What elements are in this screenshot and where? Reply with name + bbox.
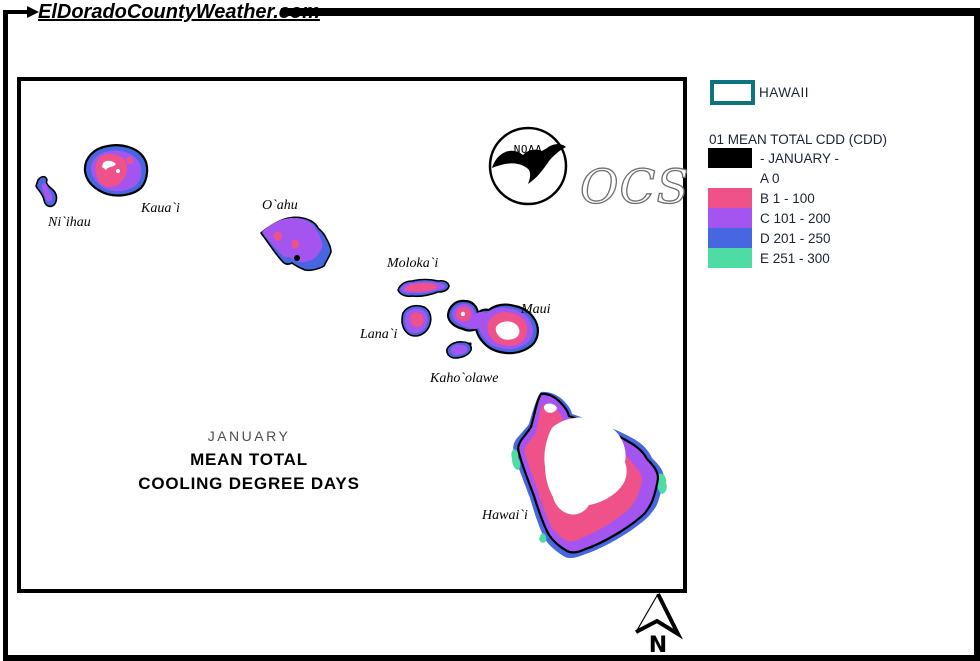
hawaii-extent-label: HAWAII bbox=[759, 85, 809, 100]
legend-swatch-january bbox=[708, 148, 752, 168]
legend-swatch-a bbox=[708, 168, 752, 188]
legend-row-b: B 1 - 100 bbox=[708, 188, 839, 208]
hawaii-extent-box bbox=[710, 80, 755, 105]
island-hawaii-zone-e-southwest bbox=[539, 534, 546, 543]
legend-row-c: C 101 - 200 bbox=[708, 208, 839, 228]
legend-row-d: D 201 - 250 bbox=[708, 228, 839, 248]
label-kahoolawe: Kaho`olawe bbox=[429, 371, 498, 386]
legend-row-e: E 251 - 300 bbox=[708, 248, 839, 268]
island-kahoolawe[interactable] bbox=[447, 342, 471, 358]
legend-label-e: E 251 - 300 bbox=[760, 251, 830, 266]
map-title-line1: JANUARY bbox=[208, 428, 291, 444]
island-hawaii[interactable] bbox=[511, 392, 666, 558]
legend-label-c: C 101 - 200 bbox=[760, 211, 831, 226]
legend-label-a: A 0 bbox=[760, 171, 780, 186]
north-arrow-icon-bold bbox=[636, 594, 678, 634]
north-label: N bbox=[649, 633, 667, 658]
island-kauai[interactable] bbox=[85, 145, 147, 195]
oahu-urban-mark bbox=[294, 255, 300, 261]
ocs-watermark: OCS bbox=[580, 160, 690, 215]
legend-swatch-b bbox=[708, 188, 752, 208]
label-molokai: Moloka`i bbox=[386, 256, 438, 271]
map-title-line2: MEAN TOTAL bbox=[190, 450, 308, 469]
legend-swatch-c bbox=[708, 208, 752, 228]
island-molokai[interactable] bbox=[398, 280, 449, 297]
legend-swatch-d bbox=[708, 228, 752, 248]
page: ElDoradoCountyWeather.com bbox=[0, 0, 980, 661]
label-oahu: O`ahu bbox=[262, 198, 298, 213]
noaa-logo: NOAA bbox=[490, 128, 566, 204]
legend-title: 01 MEAN TOTAL CDD (CDD) bbox=[709, 132, 887, 147]
label-niihau: Ni`ihau bbox=[47, 215, 91, 230]
legend-label-january: - JANUARY - bbox=[760, 151, 839, 166]
label-hawaii: Hawai`i bbox=[481, 508, 528, 523]
island-lanai[interactable] bbox=[402, 306, 431, 336]
label-lanai: Lana`i bbox=[359, 327, 397, 342]
hawaii-map-svg: Ni`ihau Kaua`i O`ahu Moloka`i Lana`i Mau… bbox=[0, 0, 980, 661]
island-maui-zone-a2 bbox=[461, 312, 465, 316]
legend-row-a: A 0 bbox=[708, 168, 839, 188]
legend-label-b: B 1 - 100 bbox=[760, 191, 815, 206]
map-title: JANUARY MEAN TOTAL COOLING DEGREE DAYS bbox=[138, 428, 359, 493]
island-oahu[interactable] bbox=[261, 217, 331, 270]
label-maui: Maui bbox=[520, 302, 551, 317]
label-kauai: Kaua`i bbox=[140, 201, 180, 216]
header-arrow-icon bbox=[27, 6, 39, 18]
legend-rows: - JANUARY - A 0 B 1 - 100 C 101 - 200 D … bbox=[708, 148, 839, 268]
legend-row-january: - JANUARY - bbox=[708, 148, 839, 168]
north-compass: N bbox=[636, 594, 678, 658]
island-kauai-zone-a2 bbox=[116, 169, 120, 173]
island-niihau[interactable] bbox=[36, 177, 57, 207]
map-title-line3: COOLING DEGREE DAYS bbox=[138, 474, 359, 493]
legend-label-d: D 201 - 250 bbox=[760, 231, 831, 246]
legend-swatch-e bbox=[708, 248, 752, 268]
